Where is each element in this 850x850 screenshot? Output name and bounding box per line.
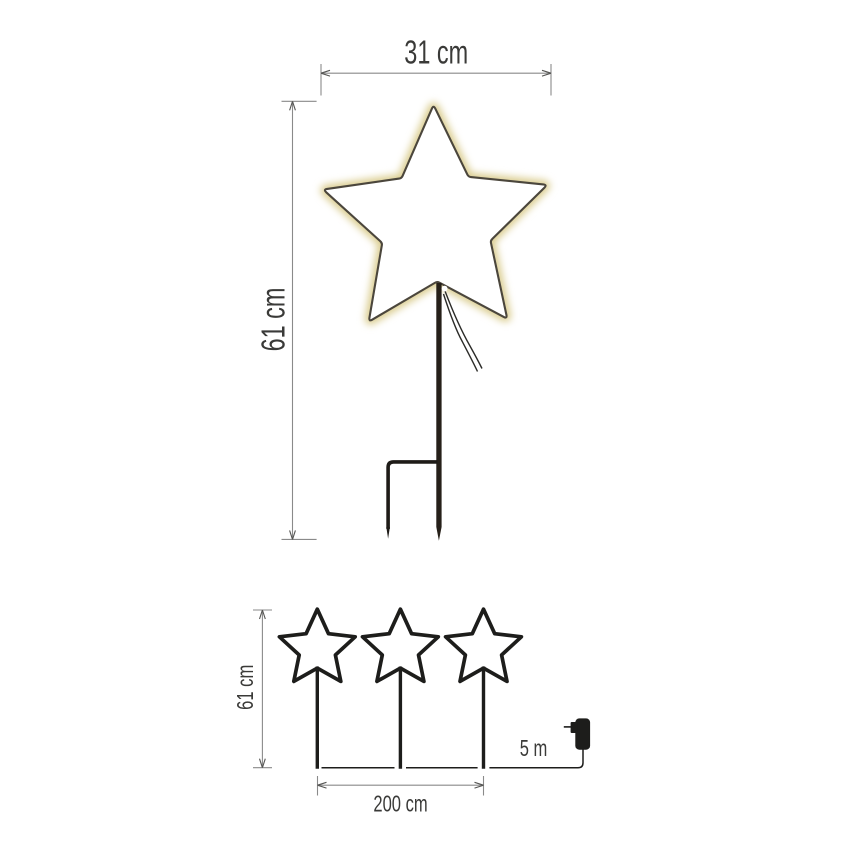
svg-text:5 m: 5 m xyxy=(520,736,548,761)
svg-text:61 cm: 61 cm xyxy=(256,288,293,352)
svg-text:200 cm: 200 cm xyxy=(373,792,427,817)
svg-text:31 cm: 31 cm xyxy=(404,35,468,72)
svg-text:61 cm: 61 cm xyxy=(234,665,259,710)
